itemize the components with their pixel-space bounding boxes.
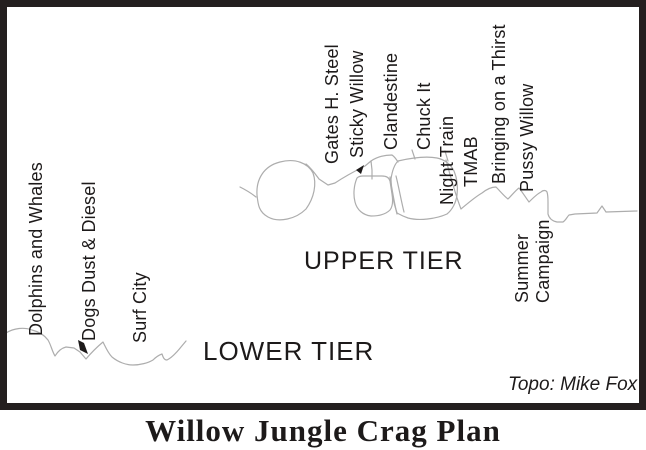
route-label-dolphins-and-whales: Dolphins and Whales	[26, 162, 46, 336]
gully-crack-line-right	[396, 176, 404, 212]
route-label-tmab: TMAB	[461, 136, 481, 187]
route-label-sticky-willow: Sticky Willow	[347, 50, 367, 158]
route-label-dogs-dust-and-diesel: Dogs Dust & Diesel	[79, 181, 99, 341]
upper-tier-approach-line	[240, 187, 256, 197]
upper-tier-boulder-outline	[257, 161, 315, 220]
route-label-bringing-on-a-thirst: Bringing on a Thirst	[489, 24, 509, 184]
route-label-night-train: Night Train	[437, 116, 457, 205]
route-label-gates-h-steel: Gates H. Steel	[322, 44, 342, 164]
route-label-pussy-willow: Pussy Willow	[517, 84, 537, 192]
route-arrow-marker	[356, 165, 364, 174]
topo-credit: Topo: Mike Fox	[508, 374, 637, 396]
upper-tier-junction-line	[371, 155, 398, 162]
route-label-surf-city: Surf City	[130, 272, 150, 343]
route-label-chuck-it: Chuck It	[414, 82, 434, 150]
lower-tier-label: LOWER TIER	[203, 336, 374, 367]
page-title: Willow Jungle Crag Plan	[0, 413, 646, 449]
upper-tier-label: UPPER TIER	[304, 247, 464, 276]
route-label-clandestine: Clandestine	[381, 53, 401, 150]
upper-tier-middle-block-outline	[354, 176, 393, 216]
route-label-summer-campaign: Summer Campaign	[512, 219, 554, 303]
